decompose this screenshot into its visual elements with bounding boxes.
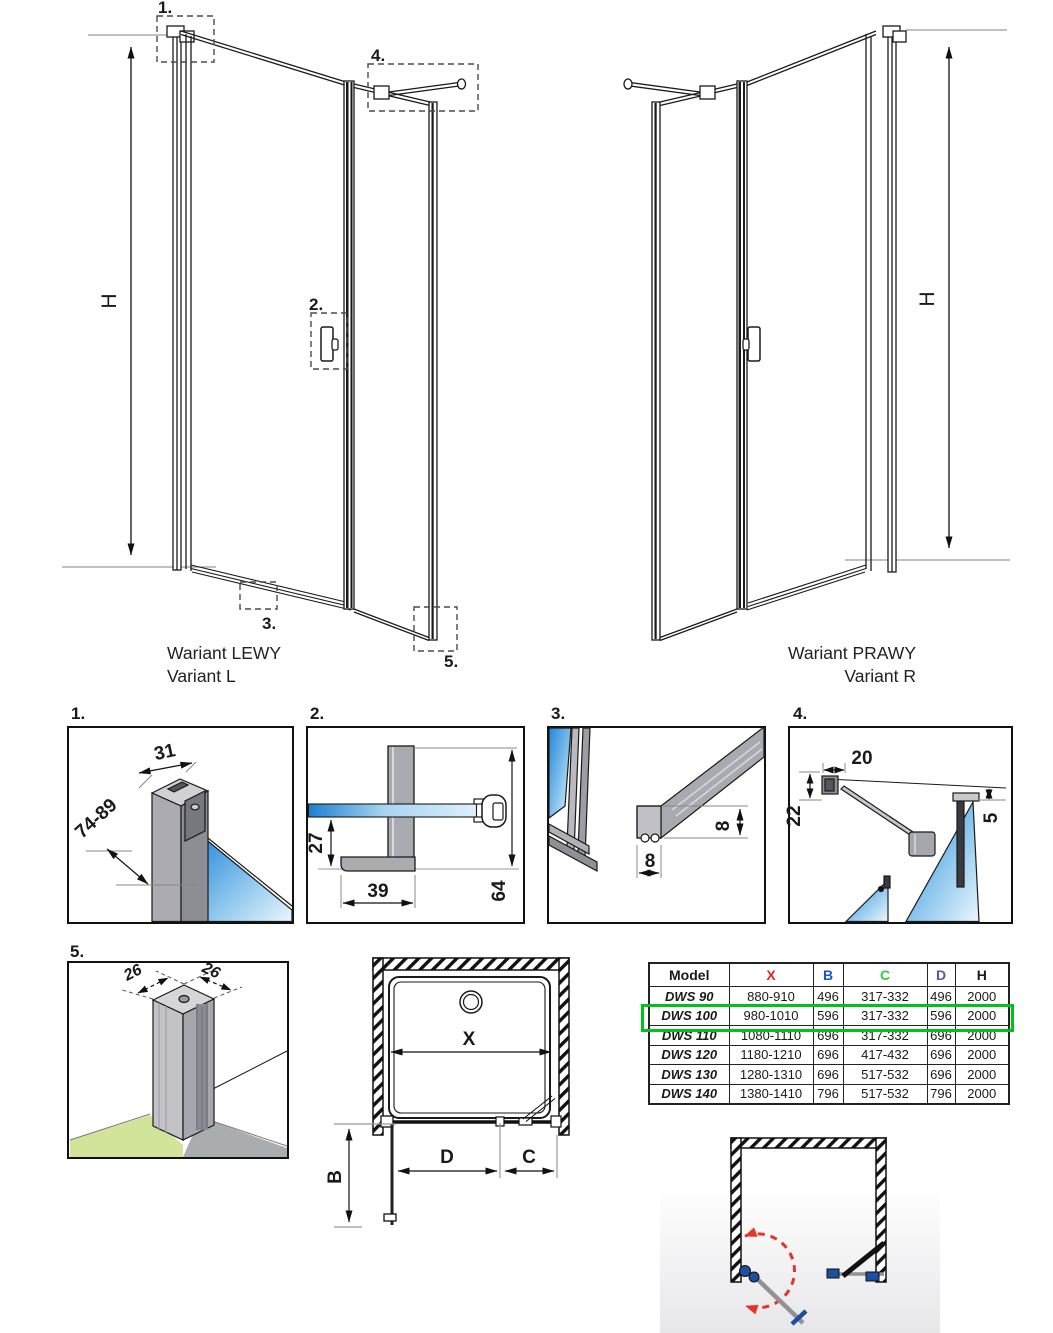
left-caption-line2: Variant L [167, 666, 236, 686]
cell-d: 496 [927, 987, 955, 1007]
dim-64: 64 [489, 880, 510, 902]
dim-x-label: X [463, 1029, 476, 1050]
cell-d: 696 [927, 1065, 955, 1085]
spec-table: ModelXBCDH DWS 90880-910496317-332496200… [648, 962, 1010, 1105]
cell-h: 2000 [955, 987, 1009, 1007]
door-foot [384, 1214, 396, 1221]
cell-c: 317-332 [843, 1006, 927, 1026]
glass-clamp [909, 832, 935, 856]
wall-top [373, 958, 569, 970]
cell-model: DWS 120 [649, 1045, 729, 1065]
cell-x: 1180-1210 [729, 1045, 813, 1065]
support-bar-bracket [374, 86, 389, 99]
door-handle [748, 327, 760, 361]
left-caption-line1: Wariant LEWY [167, 643, 281, 663]
table-row-dws-100: DWS 100980-1010596317-3325962000 [649, 1006, 1009, 1026]
detail-1-wall-profile: 1. 31 74-89 [60, 700, 300, 930]
column-header-x: X [729, 963, 813, 987]
clamp [866, 1272, 879, 1281]
wall-mount-cap [458, 79, 466, 89]
floor-gradient [660, 1185, 940, 1333]
spec-table-head-row: ModelXBCDH [649, 963, 1009, 987]
dim-d-label: D [440, 1147, 454, 1168]
cell-x: 980-1010 [729, 1006, 813, 1026]
column-header-d: D [927, 963, 955, 987]
bcd-dimensions: B D C [325, 1123, 557, 1227]
cell-model: DWS 90 [649, 987, 729, 1007]
detail-label: 1. [71, 704, 85, 723]
dim-c-label: C [522, 1147, 536, 1168]
left-variant-diagram: H 1. 2 [55, 0, 535, 700]
cell-d: 696 [927, 1045, 955, 1065]
cell-h: 2000 [955, 1026, 1009, 1046]
cell-h: 2000 [955, 1084, 1009, 1104]
spec-sheet-page: H 1. 2 [0, 0, 1053, 1333]
cell-c: 517-532 [843, 1065, 927, 1085]
door-swing-diagram [660, 1130, 940, 1333]
dim-22: 22 [784, 805, 805, 826]
cell-b: 796 [813, 1084, 843, 1104]
detail-label: 5. [70, 942, 84, 961]
cell-b: 696 [813, 1045, 843, 1065]
cell-x: 1280-1310 [729, 1065, 813, 1085]
callout-label-1: 1. [158, 0, 172, 17]
cell-model: DWS 140 [649, 1084, 729, 1104]
cell-c: 517-532 [843, 1084, 927, 1104]
dim-27: 27 [306, 832, 327, 853]
table-row-dws-120: DWS 1201180-1210696417-4326962000 [649, 1045, 1009, 1065]
detail-4-support-bar: 4. 20 22 5 [782, 700, 1020, 930]
support-bar-bracket [700, 86, 715, 99]
detail-3-bottom-seal: 3. 8 8 [540, 700, 772, 930]
cell-c: 317-332 [843, 1026, 927, 1046]
cell-x: 880-910 [729, 987, 813, 1007]
glass-panel [309, 804, 477, 817]
detail-label: 3. [551, 704, 565, 723]
callout-label-4: 4. [371, 46, 385, 65]
construction-lines [62, 35, 216, 567]
cell-d: 796 [927, 1084, 955, 1104]
column-header-b: B [813, 963, 843, 987]
dim-5: 5 [981, 812, 1002, 823]
right-caption-line2: Variant R [844, 666, 916, 686]
right-caption-line1: Wariant PRAWY [788, 643, 916, 663]
cell-c: 417-432 [843, 1045, 927, 1065]
cell-model: DWS 110 [649, 1026, 729, 1046]
h-dimension-label: H [98, 293, 121, 308]
callout-label-3: 3. [262, 614, 276, 633]
clamp [827, 1269, 839, 1278]
cell-b: 596 [813, 1006, 843, 1026]
hinge [740, 1266, 751, 1277]
cell-b: 496 [813, 987, 843, 1007]
cell-b: 696 [813, 1026, 843, 1046]
wall-right [876, 1138, 886, 1282]
table-row-dws-140: DWS 1401380-1410796517-5327962000 [649, 1084, 1009, 1104]
table-row-dws-90: DWS 90880-910496317-3324962000 [649, 987, 1009, 1007]
cell-x: 1080-1110 [729, 1026, 813, 1046]
cell-d: 596 [927, 1006, 955, 1026]
wall-top [731, 1138, 886, 1148]
cell-c: 317-332 [843, 987, 927, 1007]
right-door-drawing [624, 26, 906, 641]
cell-b: 696 [813, 1065, 843, 1085]
column-header-h: H [955, 963, 1009, 987]
left-door-drawing [167, 26, 466, 641]
table-row-dws-110: DWS 1101080-1110696317-3326962000 [649, 1026, 1009, 1046]
callout-label-2: 2. [309, 295, 323, 314]
wall-left [373, 958, 383, 1135]
detail-label: 4. [793, 704, 807, 723]
detail-label: 2. [310, 704, 324, 723]
wall-mount-cap [624, 79, 632, 89]
dim-8-height: 8 [713, 821, 734, 832]
wall-right [559, 958, 569, 1135]
column-header-model: Model [649, 963, 729, 987]
dim-39: 39 [367, 881, 388, 902]
h-dimension: H [916, 47, 949, 548]
table-row-dws-130: DWS 1301280-1310696517-5326962000 [649, 1065, 1009, 1085]
cell-d: 696 [927, 1026, 955, 1046]
hinge [749, 1272, 759, 1282]
dim-20: 20 [851, 748, 872, 769]
cell-model: DWS 100 [649, 1006, 729, 1026]
callout-box-3 [240, 582, 277, 609]
x-dimension: X [391, 1029, 551, 1052]
detail-2-handle-profile: 2. 27 39 64 [300, 700, 532, 930]
spec-table-body: DWS 90880-910496317-3324962000DWS 100980… [649, 987, 1009, 1105]
plan-view: X B D C [325, 952, 630, 1242]
cell-h: 2000 [955, 1065, 1009, 1085]
h-dimension-label: H [916, 291, 939, 306]
cell-h: 2000 [955, 1045, 1009, 1065]
column-header-c: C [843, 963, 927, 987]
dim-8-width: 8 [645, 851, 656, 872]
h-dimension: H [98, 47, 131, 555]
wall-left [731, 1138, 741, 1282]
cell-h: 2000 [955, 1006, 1009, 1026]
right-variant-diagram: H Wariant PRAWY Variant R [585, 0, 1053, 700]
cell-model: DWS 130 [649, 1065, 729, 1085]
detail-5-floor-profile: 5. 26 26 [60, 940, 296, 1165]
callout-label-5: 5. [444, 652, 458, 671]
door-handle [321, 327, 333, 361]
dim-b-label: B [325, 1170, 346, 1184]
cell-x: 1380-1410 [729, 1084, 813, 1104]
